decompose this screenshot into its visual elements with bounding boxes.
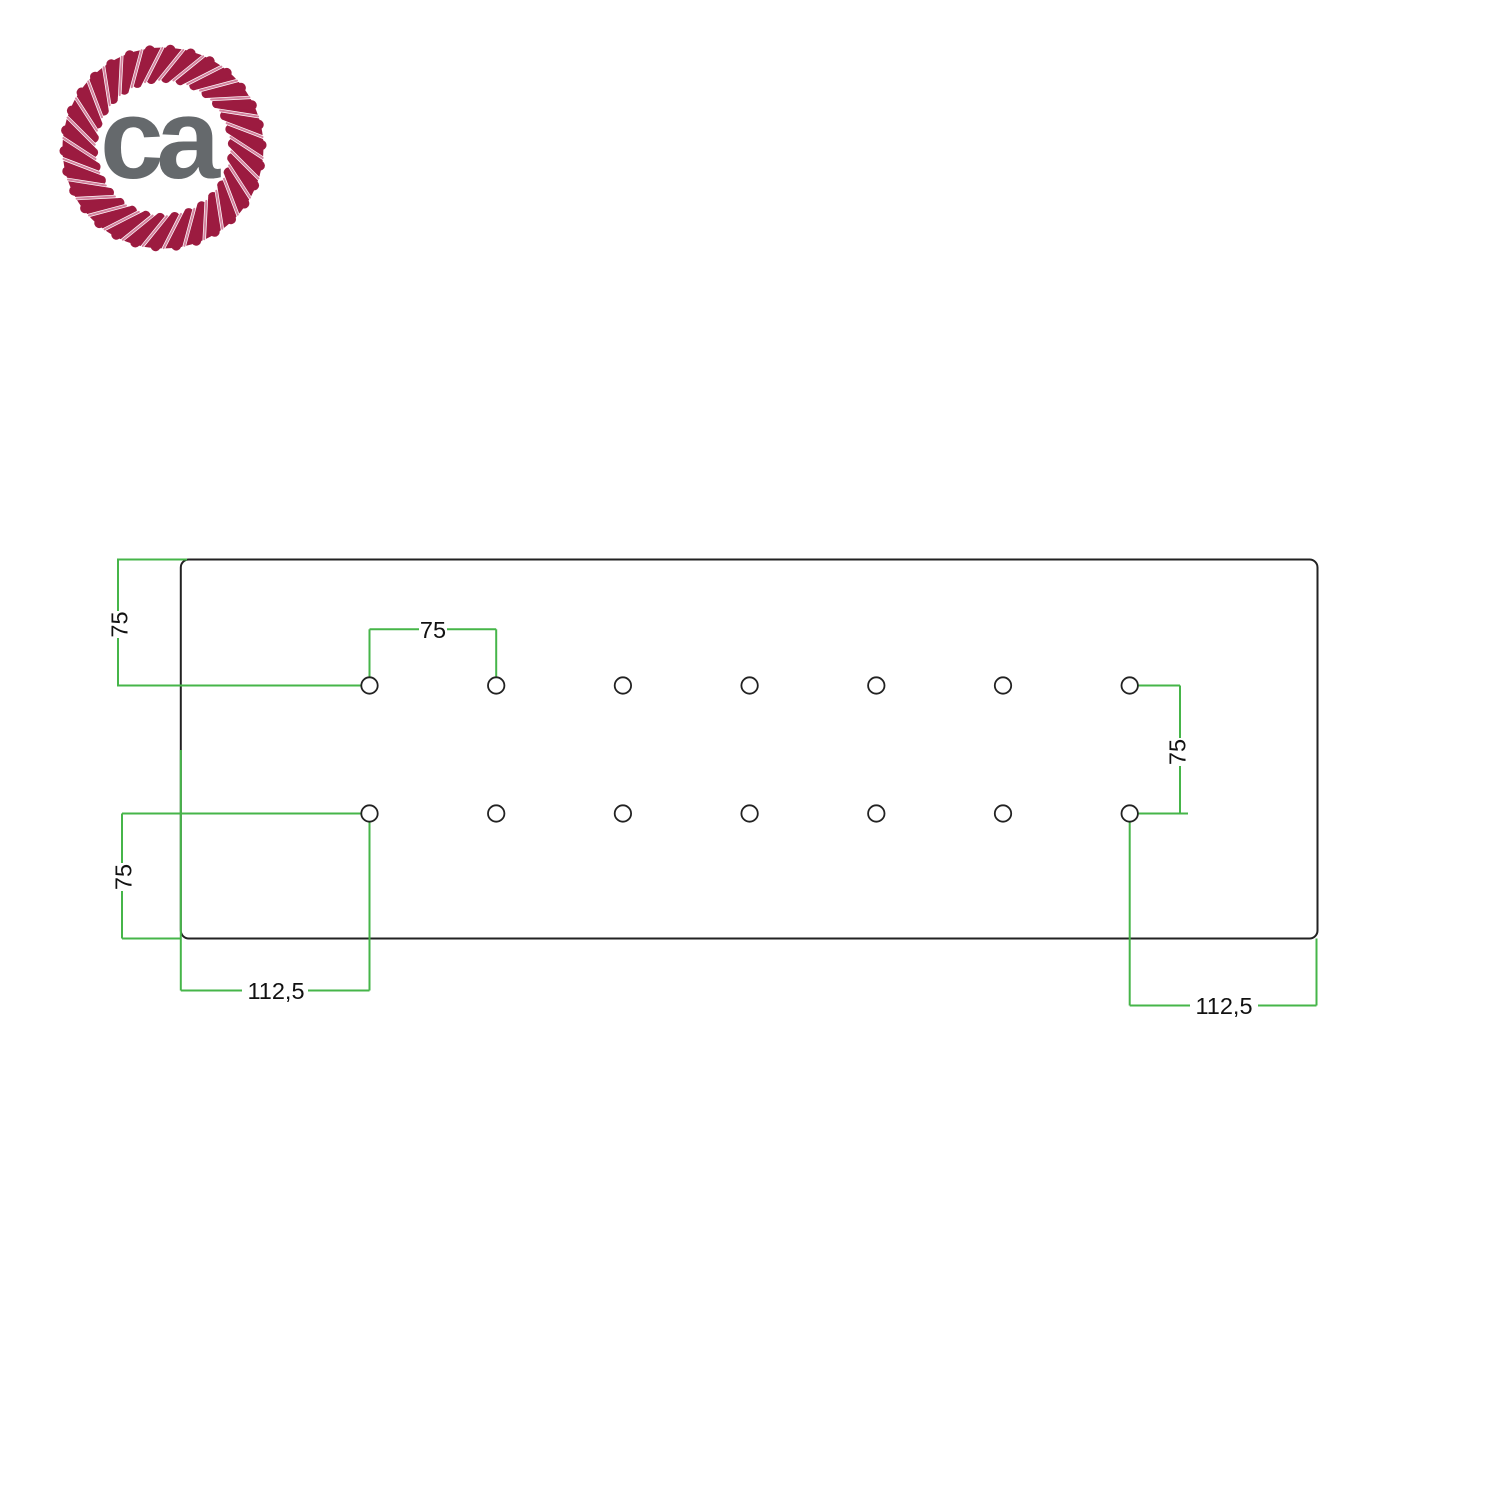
svg-text:75: 75 xyxy=(107,611,133,637)
svg-text:75: 75 xyxy=(1165,739,1191,765)
svg-text:75: 75 xyxy=(420,617,446,643)
svg-text:75: 75 xyxy=(111,864,137,890)
svg-text:112,5: 112,5 xyxy=(247,978,304,1004)
svg-text:ca: ca xyxy=(100,75,221,203)
svg-text:112,5: 112,5 xyxy=(1195,993,1252,1019)
